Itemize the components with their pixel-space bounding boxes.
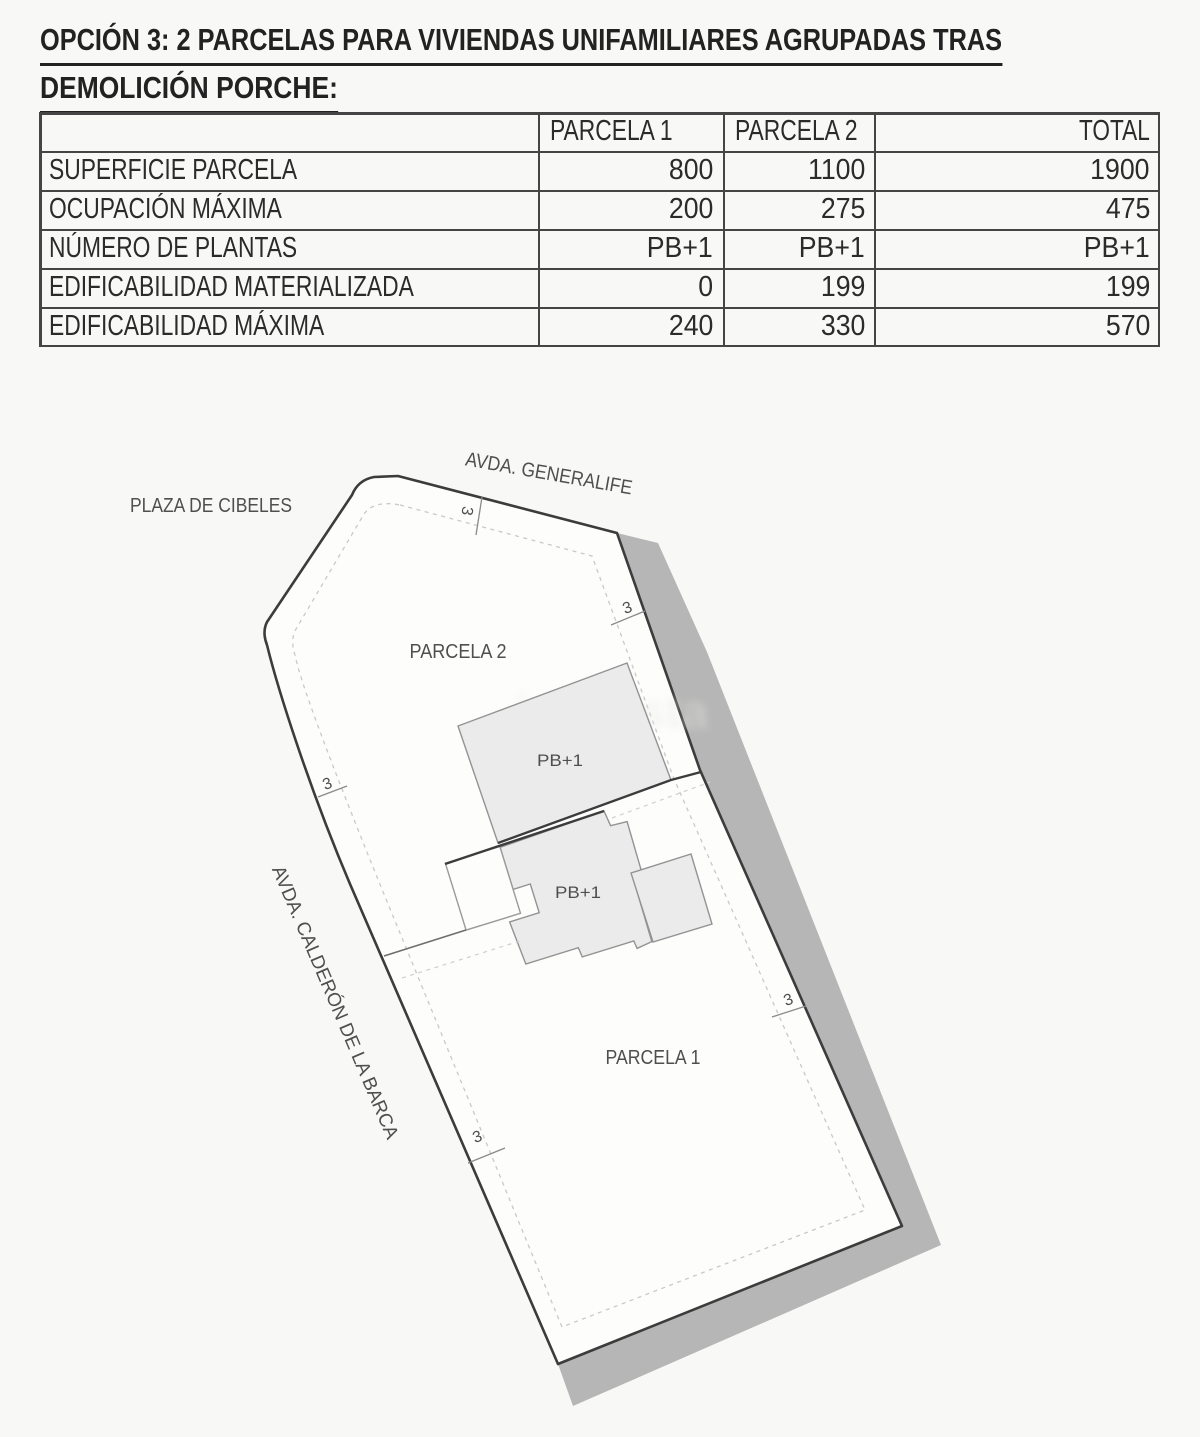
svg-text:PLAZA DE CIBELES: PLAZA DE CIBELES (130, 495, 292, 517)
svg-text:PB+1: PB+1 (537, 751, 583, 770)
svg-text:PARCELA 1: PARCELA 1 (606, 1047, 701, 1069)
svg-text:PARCELA 2: PARCELA 2 (410, 641, 507, 663)
svg-text:PB+1: PB+1 (555, 883, 601, 902)
svg-text:AVDA. GENERALIFE: AVDA. GENERALIFE (464, 448, 634, 499)
